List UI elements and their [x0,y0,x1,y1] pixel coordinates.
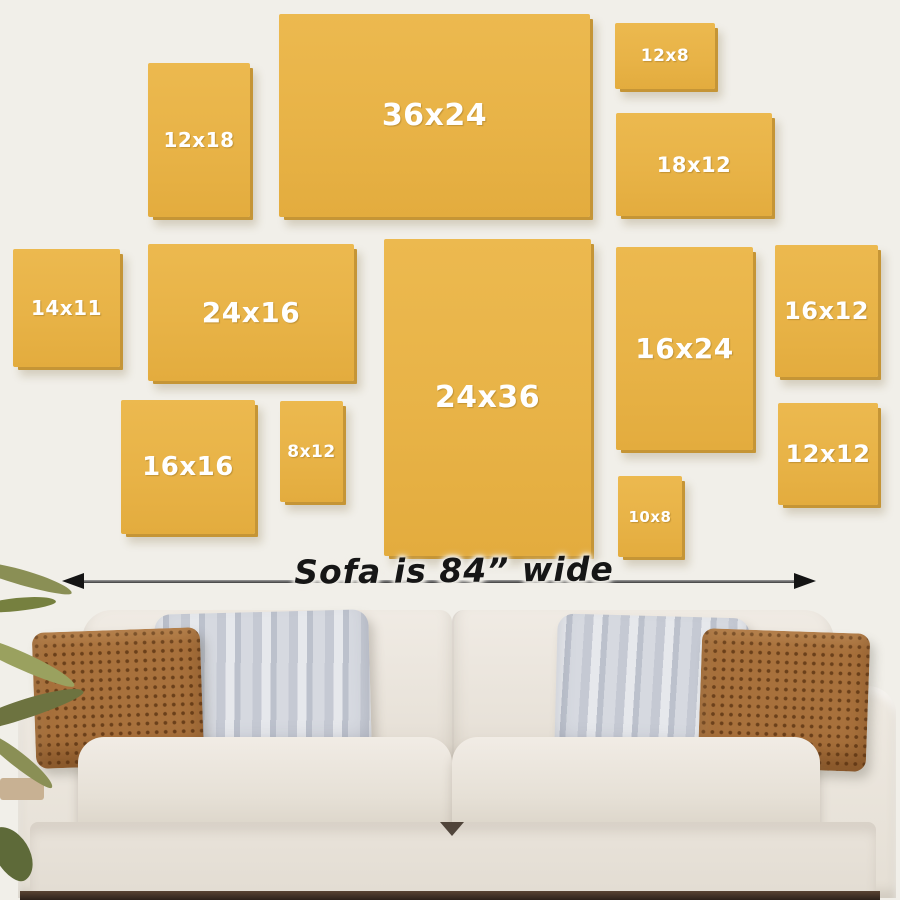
size-panel-24x36: 24x36 [384,239,591,556]
panel-size-label: 36x24 [382,98,487,133]
size-panel-12x8: 12x8 [615,23,715,89]
panel-size-label: 12x12 [786,440,871,468]
arrow-right-head-icon [794,573,816,589]
panel-size-label: 16x12 [784,297,869,325]
panel-size-label: 14x11 [31,296,102,320]
panel-size-label: 10x8 [629,508,672,526]
sofa-width-caption: Sofa is 84” wide [294,549,614,591]
panel-size-label: 12x18 [163,128,234,152]
size-panel-16x12: 16x12 [775,245,878,377]
size-panel-16x24: 16x24 [616,247,753,450]
panel-size-label: 24x16 [202,296,301,329]
floor-shadow [20,891,880,900]
size-panel-14x11: 14x11 [13,249,120,367]
panel-size-label: 24x36 [435,380,540,415]
size-panel-36x24: 36x24 [279,14,590,217]
panel-size-label: 8x12 [287,442,335,462]
size-panel-10x8: 10x8 [618,476,682,557]
sofa-seat-seam-shadow [440,822,464,836]
panel-size-label: 16x16 [142,452,234,482]
size-panel-12x12: 12x12 [778,403,878,505]
panel-size-label: 12x8 [641,46,689,66]
panel-size-label: 18x12 [657,153,732,177]
plant-leaf [0,594,56,615]
size-guide-scene: 36x24 12x18 12x8 18x12 14x11 24x16 24x36… [0,0,900,900]
size-panel-18x12: 18x12 [616,113,772,216]
size-panel-16x16: 16x16 [121,400,255,534]
panel-size-label: 16x24 [635,332,734,365]
size-panel-24x16: 24x16 [148,244,354,381]
size-panel-12x18: 12x18 [148,63,250,217]
size-panel-8x12: 8x12 [280,401,343,502]
